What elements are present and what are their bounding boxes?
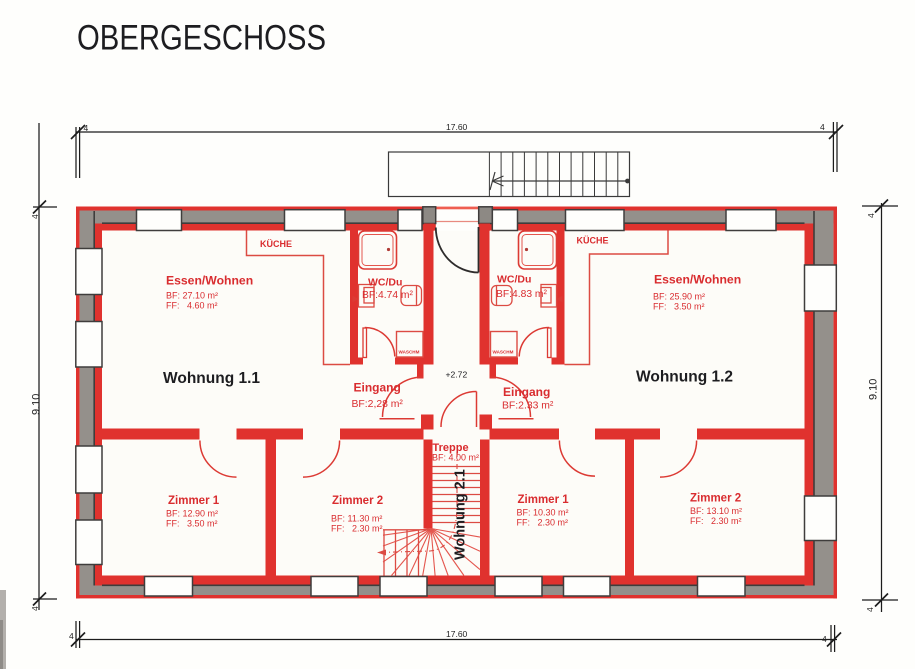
svg-text:4: 4 xyxy=(822,634,827,644)
svg-text:Essen/Wohnen: Essen/Wohnen xyxy=(166,274,253,288)
svg-text:OBERGESCHOSS: OBERGESCHOSS xyxy=(77,19,326,58)
svg-text:FF: 2.30 m²: FF: 2.30 m² xyxy=(690,516,742,526)
svg-text:4: 4 xyxy=(820,122,825,132)
svg-text:Zimmer 2: Zimmer 2 xyxy=(332,495,383,507)
svg-text:WASCHM: WASCHM xyxy=(399,350,420,355)
svg-text:BF: 27.10 m²: BF: 27.10 m² xyxy=(166,291,218,301)
svg-text:9.10: 9.10 xyxy=(868,379,880,400)
svg-text:BF: 11.30 m²: BF: 11.30 m² xyxy=(331,514,382,524)
svg-text:WASCHM: WASCHM xyxy=(493,350,514,355)
svg-text:WC/Du: WC/Du xyxy=(368,277,402,289)
svg-text:BF: 10.30 m²: BF: 10.30 m² xyxy=(517,508,569,518)
svg-text:4: 4 xyxy=(30,606,40,611)
svg-text:FF: 3.50 m²: FF: 3.50 m² xyxy=(653,302,705,312)
svg-text:Zimmer 1: Zimmer 1 xyxy=(168,495,220,507)
svg-text:BF:4.74 m²: BF:4.74 m² xyxy=(362,290,413,301)
svg-text:BF:2,28 m²: BF:2,28 m² xyxy=(352,399,404,410)
svg-text:4: 4 xyxy=(30,214,40,219)
svg-text:9.10: 9.10 xyxy=(31,394,43,415)
svg-text:4: 4 xyxy=(69,631,74,641)
svg-text:Essen/Wohnen: Essen/Wohnen xyxy=(654,273,741,287)
svg-text:Zimmer 1: Zimmer 1 xyxy=(518,494,570,506)
svg-text:BF:4.83 m²: BF:4.83 m² xyxy=(496,289,547,300)
svg-text:KÜCHE: KÜCHE xyxy=(577,236,609,246)
svg-text:BF: 13.10 m²: BF: 13.10 m² xyxy=(690,506,742,516)
svg-text:BF: 4.00 m²: BF: 4.00 m² xyxy=(432,453,479,463)
svg-text:FF: 2.30 m²: FF: 2.30 m² xyxy=(517,518,569,528)
svg-text:4: 4 xyxy=(866,213,876,218)
svg-text:4: 4 xyxy=(865,607,875,612)
svg-text:Zimmer 2: Zimmer 2 xyxy=(690,493,741,505)
svg-text:BF: 25.90 m²: BF: 25.90 m² xyxy=(653,292,705,302)
svg-text:17.60: 17.60 xyxy=(446,629,468,639)
svg-text:FF: 4.60 m²: FF: 4.60 m² xyxy=(166,301,218,311)
svg-text:FF: 3.50 m²: FF: 3.50 m² xyxy=(166,519,218,529)
svg-text:4: 4 xyxy=(84,123,89,133)
svg-text:Wohnung 1.1: Wohnung 1.1 xyxy=(163,370,260,387)
svg-text:BF:2.33 m²: BF:2.33 m² xyxy=(502,401,554,412)
svg-text:Wohnung 2.1: Wohnung 2.1 xyxy=(453,469,469,560)
svg-text:WC/Du: WC/Du xyxy=(497,274,531,286)
svg-text:BF: 12.90 m²: BF: 12.90 m² xyxy=(166,509,218,519)
svg-text:+2.72: +2.72 xyxy=(446,370,468,380)
svg-text:FF: 2.30 m²: FF: 2.30 m² xyxy=(331,524,383,534)
svg-text:Wohnung 1.2: Wohnung 1.2 xyxy=(636,369,733,386)
svg-text:Eingang: Eingang xyxy=(354,381,401,395)
svg-text:17.60: 17.60 xyxy=(446,122,468,132)
svg-text:Eingang: Eingang xyxy=(503,385,550,399)
svg-text:KÜCHE: KÜCHE xyxy=(260,239,292,249)
